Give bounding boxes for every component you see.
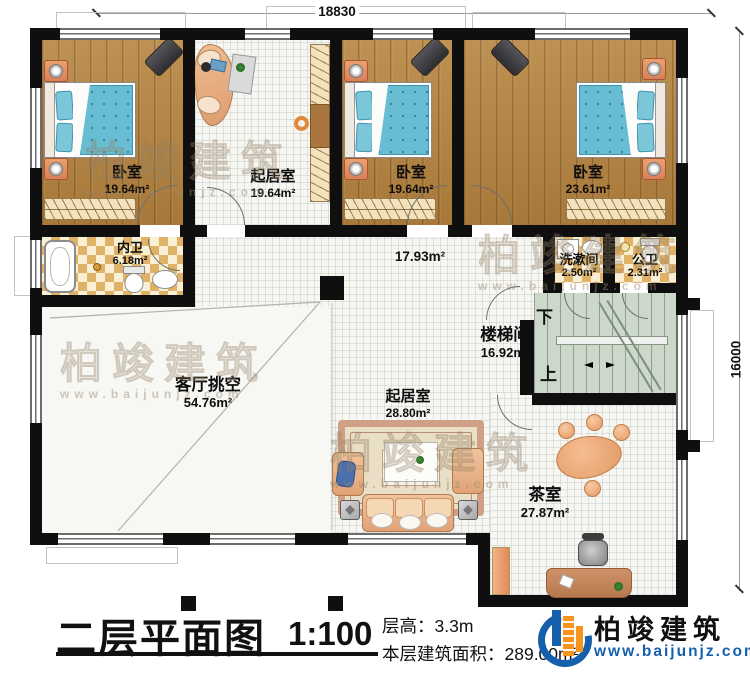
room-label-bedroom2: 卧室 19.64m² — [389, 164, 434, 196]
wall-wash-bottom-c — [648, 283, 688, 293]
logo-building-bar-orange-small — [576, 626, 583, 652]
room-label-publicbath: 公卫 2.31m² — [628, 252, 663, 280]
stair-down-label: 下 — [536, 303, 553, 328]
window-left-bedroom1 — [30, 88, 42, 168]
wall-corridor-c — [245, 225, 407, 237]
innerbath-toilet — [123, 266, 145, 294]
wall-corridor-d — [448, 225, 472, 237]
sofa-pillow — [399, 515, 421, 530]
bed-pillow — [55, 123, 73, 153]
bedroom3-nightstand-bottom — [642, 158, 666, 180]
tearoom-office-chair — [578, 540, 608, 566]
livingroom-sidetable-right — [458, 500, 478, 520]
window-top-bedroom3 — [535, 28, 630, 40]
window-top-bedroom2 — [373, 28, 433, 40]
study-ceiling-lamp — [294, 116, 309, 131]
bed-headboard — [45, 83, 55, 157]
stair-arrow-left — [584, 362, 593, 368]
stair-arrow-right — [606, 362, 615, 368]
room-label-living-void: 客厅挑空 54.76m² — [175, 376, 241, 411]
window-bottom-living — [348, 533, 466, 545]
stair-up-label: 上 — [540, 360, 557, 385]
title-underline — [56, 652, 378, 656]
innerbath-stand — [93, 263, 101, 271]
wall-bed1-study — [183, 28, 195, 237]
bedroom1-nightstand-top — [44, 60, 68, 82]
livingroom-sidetable-left — [340, 500, 360, 520]
company-website: www.baijunjz.com — [594, 643, 750, 661]
coffee-table-decor — [416, 456, 424, 464]
window-bottom-void-2 — [210, 533, 295, 545]
tearoom-cabinet — [492, 547, 510, 595]
study-person — [201, 62, 211, 72]
room-label-bedroom1: 卧室 19.64m² — [105, 164, 150, 196]
wall-bed2-bed3 — [452, 28, 464, 237]
window-right-stair — [676, 315, 688, 430]
study-plant — [236, 63, 245, 72]
window-right-bedroom3 — [676, 78, 688, 163]
company-name: 柏竣建筑 — [594, 608, 726, 647]
innerbath-tub — [44, 240, 76, 293]
room-label-washroom: 洗漱间 2.50m² — [559, 252, 598, 280]
wall-innerbath-bottom — [30, 295, 195, 307]
dimension-right-value: 16000 — [728, 338, 743, 382]
livingroom-sofa — [362, 494, 454, 532]
room-label-hallway: 17.93m² — [395, 249, 445, 264]
window-left-innerbath — [30, 240, 42, 288]
tearoom-stool — [586, 414, 603, 431]
wall-wash-partition — [603, 237, 615, 287]
window-top-bedroom1 — [60, 28, 160, 40]
room-label-innerbath: 内卫 6.18m² — [113, 240, 148, 268]
plan-scale: 1:100 — [288, 615, 372, 653]
wall-wash-bottom-b — [590, 283, 620, 293]
balcony-nub-bottom — [688, 440, 700, 452]
room-label-tearoom: 茶室 27.87m² — [521, 486, 569, 521]
bedroom1-bed — [44, 82, 136, 158]
living-void-floor — [42, 307, 330, 533]
tearoom-stool — [584, 480, 601, 497]
bedroom2-nightstand-bottom — [344, 158, 368, 180]
bed-headboard — [345, 83, 355, 157]
balcony-outline-right — [690, 310, 714, 442]
bedroom2-bed — [344, 82, 432, 158]
innerbath-sink — [152, 270, 178, 289]
window-top-study — [245, 28, 290, 40]
room-label-study: 起居室 19.64m² — [250, 168, 295, 200]
room-label-bedroom3: 卧室 23.61m² — [566, 164, 611, 196]
wall-wash-bottom-a — [543, 283, 562, 293]
floor-height-note: 层高：3.3m — [382, 613, 473, 638]
window-bottom-void-1 — [58, 533, 163, 545]
floor-plan-canvas: 下 上 卧室 19.64m² 起居室 19.64m² 卧室 19.64m² — [0, 0, 750, 675]
office-chair-back — [582, 533, 604, 540]
wall-study-bed2 — [330, 28, 342, 237]
toilet-bowl — [125, 273, 144, 293]
sofa-pillow — [371, 513, 393, 528]
livingroom-armchair-right — [452, 448, 484, 494]
logo-building-bar-blue — [552, 610, 561, 646]
sofa-pillow — [426, 513, 448, 528]
bedroom3-nightstand-top — [642, 58, 666, 80]
window-left-void — [30, 335, 42, 423]
publicbath-lamp — [620, 242, 630, 252]
bedroom3-wardrobe — [566, 198, 666, 220]
room-label-livingroom: 起居室 28.80m² — [385, 388, 430, 420]
sill-outline-bottom — [46, 547, 178, 564]
bedroom1-nightstand-bottom — [44, 158, 68, 180]
stair-handrail — [556, 336, 668, 345]
logo-building-bar-orange — [563, 616, 574, 656]
bed-pillow — [355, 123, 373, 153]
bed-pillow — [55, 90, 74, 120]
balcony-nub-top — [688, 298, 700, 310]
bedroom2-nightstand-top — [344, 60, 368, 82]
porch-pillar-2 — [328, 596, 343, 611]
balcony-outline-top-2 — [266, 6, 466, 30]
bedroom1-wardrobe — [44, 198, 136, 220]
bed-pillow — [636, 90, 655, 120]
bed-headboard — [655, 83, 665, 157]
wall-connector — [478, 533, 490, 607]
dimension-line-right — [739, 33, 740, 591]
study-shelf-middle — [310, 104, 330, 148]
livingroom-coffee-table — [384, 442, 438, 482]
wall-corridor-e — [512, 225, 688, 237]
room-label-stairwell: 楼梯间 16.92m² — [480, 326, 530, 361]
wall-stair-bottom — [532, 393, 676, 405]
desk-plant — [614, 582, 623, 591]
bed-pillow — [636, 123, 654, 153]
window-right-tearoom — [676, 460, 688, 540]
bedroom3-bed — [576, 82, 666, 158]
wall-corridor-a — [30, 225, 140, 237]
tearoom-stool — [558, 422, 575, 439]
void-corner-pillar — [320, 276, 344, 300]
dimension-top-value: 18830 — [315, 4, 359, 19]
tearoom-stool — [613, 424, 630, 441]
